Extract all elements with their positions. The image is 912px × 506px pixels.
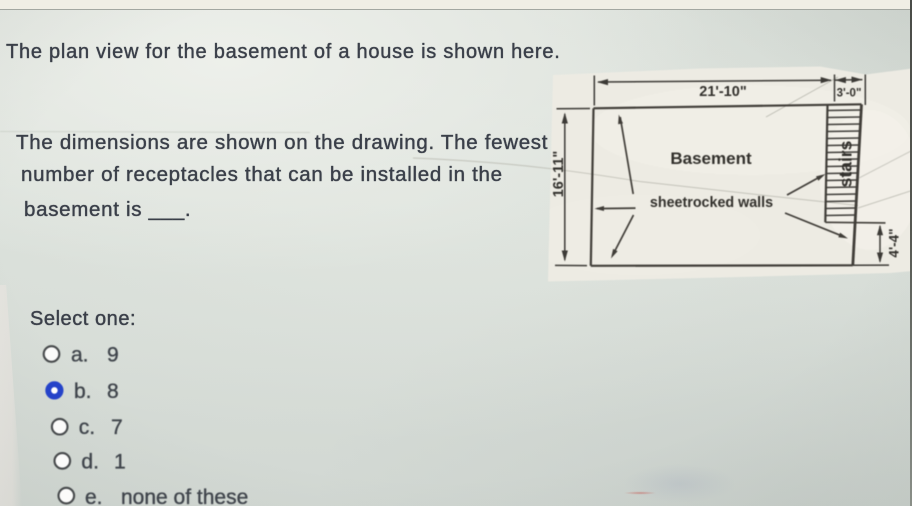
svg-text:7: 7 [111,416,123,439]
svg-text:21'-10": 21'-10" [699,84,746,100]
svg-text:a.: a. [71,344,89,367]
svg-text:sheetrocked walls: sheetrocked walls [650,195,773,211]
svg-text:3'-0": 3'-0" [837,88,862,100]
svg-text:b.: b. [74,380,92,403]
svg-text:1: 1 [114,450,126,473]
svg-text:8: 8 [107,380,119,403]
svg-text:9: 9 [107,344,119,367]
svg-text:none of these: none of these [121,486,248,506]
svg-text:d.: d. [81,450,99,473]
svg-text:Basement: Basement [670,149,752,168]
svg-text:16'-11": 16'-11" [551,151,567,198]
svg-text:stairs: stairs [836,140,856,187]
svg-text:e.: e. [85,486,103,506]
svg-text:4'-4": 4'-4" [887,228,902,257]
svg-text:c.: c. [79,416,95,439]
